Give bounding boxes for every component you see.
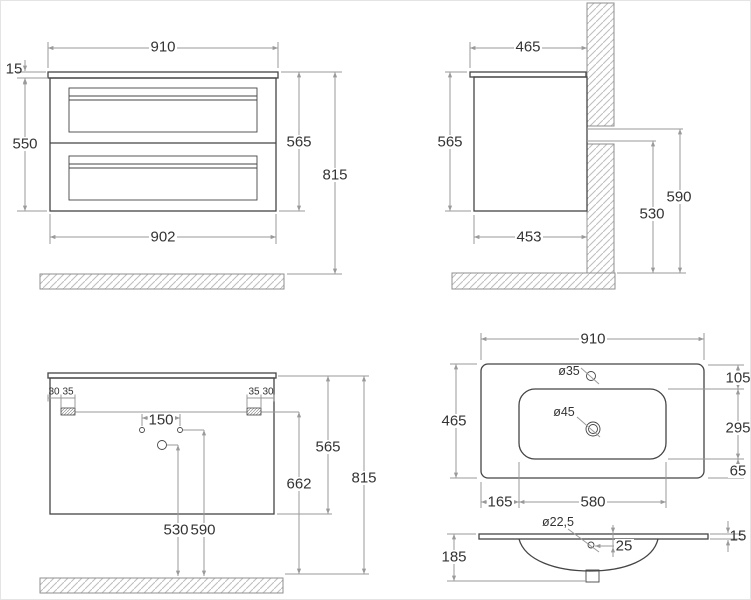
top-dim-580: 580 (580, 494, 605, 511)
side-dim-530: 530 (639, 206, 664, 223)
back-bracket-left (61, 408, 75, 415)
back-holes (140, 428, 183, 450)
front-dim-910: 910 (150, 39, 175, 56)
top-dim-295: 295 (725, 420, 750, 437)
back-dim-30-right: 30 (262, 387, 274, 398)
section-drain-stub (586, 570, 599, 582)
back-floor-hatch (40, 578, 283, 593)
back-hole-left (140, 428, 145, 433)
top-dim-465: 465 (441, 413, 466, 430)
section-overflow-leader (568, 529, 599, 552)
front-floor-hatch (40, 274, 284, 289)
back-dim-662: 662 (286, 476, 311, 493)
top-dim-faucet-dia: ø35 (558, 364, 580, 378)
side-cabinet-outline (470, 72, 587, 211)
back-dim-30-left: 30 (48, 387, 60, 398)
back-view: 30 35 35 30 150 530 590 662 565 815 (40, 373, 378, 593)
back-dim-35-right: 35 (248, 387, 260, 398)
front-view: 910 15 550 565 815 902 (6, 39, 349, 290)
back-dim-565: 565 (315, 439, 340, 456)
technical-drawing-page: 910 15 550 565 815 902 (0, 0, 751, 600)
side-dim-465: 465 (515, 39, 540, 56)
top-dimension-lines (450, 333, 744, 508)
side-dim-565: 565 (437, 134, 462, 151)
back-cabinet-outline (48, 373, 276, 514)
front-dimension-lines (17, 42, 342, 274)
side-floor-hatch (452, 273, 615, 289)
front-dim-550: 550 (12, 136, 37, 153)
side-dim-453: 453 (516, 229, 541, 246)
top-view: 910 465 ø35 ø45 105 295 65 165 580 (440, 331, 751, 511)
back-dim-530: 530 (163, 522, 188, 539)
section-dimension-lines (447, 521, 743, 581)
back-dim-590: 590 (190, 522, 215, 539)
top-drain-hole-inner (589, 425, 598, 434)
front-drawer-top (69, 88, 257, 132)
top-dim-65: 65 (730, 463, 747, 480)
back-hole-right (178, 428, 183, 433)
side-dim-590: 590 (666, 189, 691, 206)
back-dimension-lines (142, 376, 369, 576)
section-dim-25: 25 (616, 538, 633, 555)
front-dim-15: 15 (6, 61, 23, 78)
back-bracket-dimension-lines (48, 395, 274, 409)
section-view: ø22,5 25 15 185 (440, 515, 746, 582)
side-wall-hatch-lower (587, 144, 614, 273)
back-dim-815: 815 (351, 470, 376, 487)
section-dim-overflow-dia: ø22,5 (542, 515, 574, 529)
vanity-dimension-drawing: 910 15 550 565 815 902 (1, 1, 751, 600)
front-drawer-bottom (69, 156, 257, 200)
section-dim-185: 185 (441, 549, 466, 566)
top-basin-outline (519, 389, 666, 459)
top-dim-drain-dia: ø45 (553, 405, 575, 419)
front-dim-815: 815 (322, 167, 347, 184)
back-bracket-right (247, 408, 261, 415)
back-outlet-hole (158, 441, 167, 450)
side-wall-hatch-upper (587, 3, 614, 126)
section-countertop-slab (479, 534, 708, 539)
front-dim-565: 565 (286, 134, 311, 151)
top-dim-165: 165 (487, 494, 512, 511)
front-cabinet-outline (48, 72, 278, 211)
top-countertop-outline (481, 364, 704, 478)
front-dim-902: 902 (150, 229, 175, 246)
top-faucet-leader (581, 368, 599, 384)
top-dim-910: 910 (580, 331, 605, 348)
back-dim-150: 150 (148, 412, 173, 429)
top-dim-105: 105 (725, 370, 750, 387)
back-dim-35-left: 35 (62, 387, 74, 398)
side-view: 465 565 453 590 530 (436, 3, 693, 289)
section-dim-15: 15 (730, 528, 747, 545)
